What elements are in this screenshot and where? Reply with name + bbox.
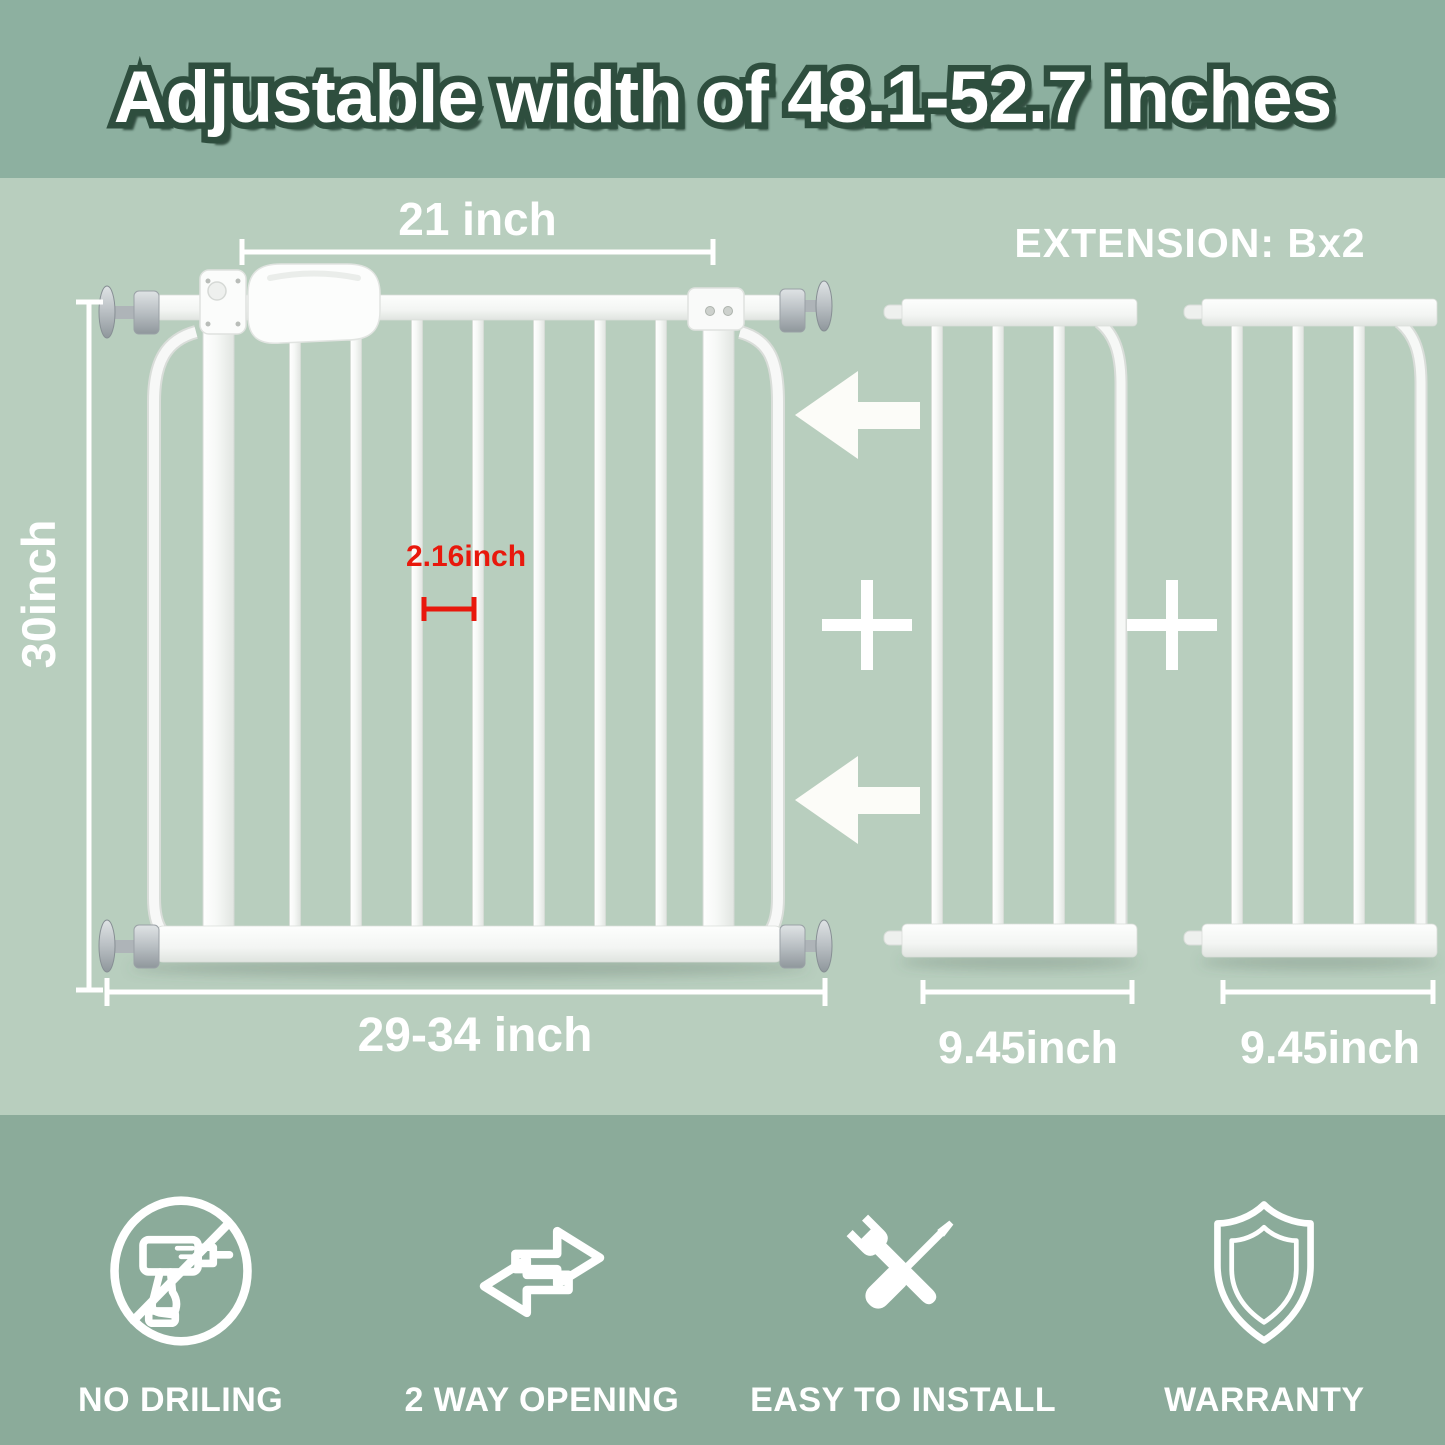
features-bar: NO DRILING 2 WAY OPENING [0,1115,1445,1445]
gate-height-label: 30inch [11,484,75,704]
gate-handle [248,264,380,343]
gate-bars [290,312,667,934]
feature-two-way-opening: 2 WAY OPENING [361,1195,722,1420]
feature-label: EASY TO INSTALL [750,1381,1056,1420]
gate-lock [200,270,246,334]
gate-right-post [703,310,734,950]
bar-gap-label: 2.16inch [366,540,566,574]
infographic-root: Adjustable width of 48.1-52.7 inches Adj… [0,0,1445,1445]
gate-top-width-label: 21 inch [242,192,713,246]
bar-gap-dimension [424,597,474,621]
gate-latch [688,288,744,330]
extension-panel-2 [1184,299,1437,957]
plus-icon [1127,580,1217,670]
extension2-width-label: 9.45inch [1180,1022,1445,1074]
extension-label: EXTENSION: Bx2 [1000,220,1380,267]
feature-no-drilling: NO DRILING [0,1195,361,1420]
dimension-lines [76,239,1433,1006]
two-way-opening-icon [466,1195,618,1347]
left-arrow-icon [795,371,920,459]
feature-easy-install: EASY TO INSTALL [723,1195,1084,1420]
shield-icon [1188,1195,1340,1347]
extension1-width-label: 9.45inch [878,1022,1178,1074]
tools-icon [827,1195,979,1347]
main-gate [99,264,832,972]
feature-label: WARRANTY [1164,1381,1364,1420]
header-banner: Adjustable width of 48.1-52.7 inches Adj… [0,0,1445,178]
feature-warranty: WARRANTY [1084,1195,1445,1420]
plus-icon [822,580,912,670]
gate-left-post [203,296,234,950]
extension-panel-1 [884,299,1137,957]
gate-bottom-rail [156,926,782,962]
gate-bottom-width-label: 29-34 inch [275,1008,675,1063]
gate-left-side-bar [154,332,196,946]
page-title-text: Adjustable width of 48.1-52.7 inches [114,56,1331,139]
feature-label: 2 WAY OPENING [404,1381,679,1420]
left-arrow-icon [795,756,920,844]
feature-label: NO DRILING [78,1381,283,1420]
diagram-section: 21 inch EXTENSION: Bx2 30inch 2.16inch 2… [0,178,1445,1115]
gate-right-side-bar [740,332,778,946]
page-title: Adjustable width of 48.1-52.7 inches Adj… [114,40,1331,139]
no-drilling-icon [105,1195,257,1347]
